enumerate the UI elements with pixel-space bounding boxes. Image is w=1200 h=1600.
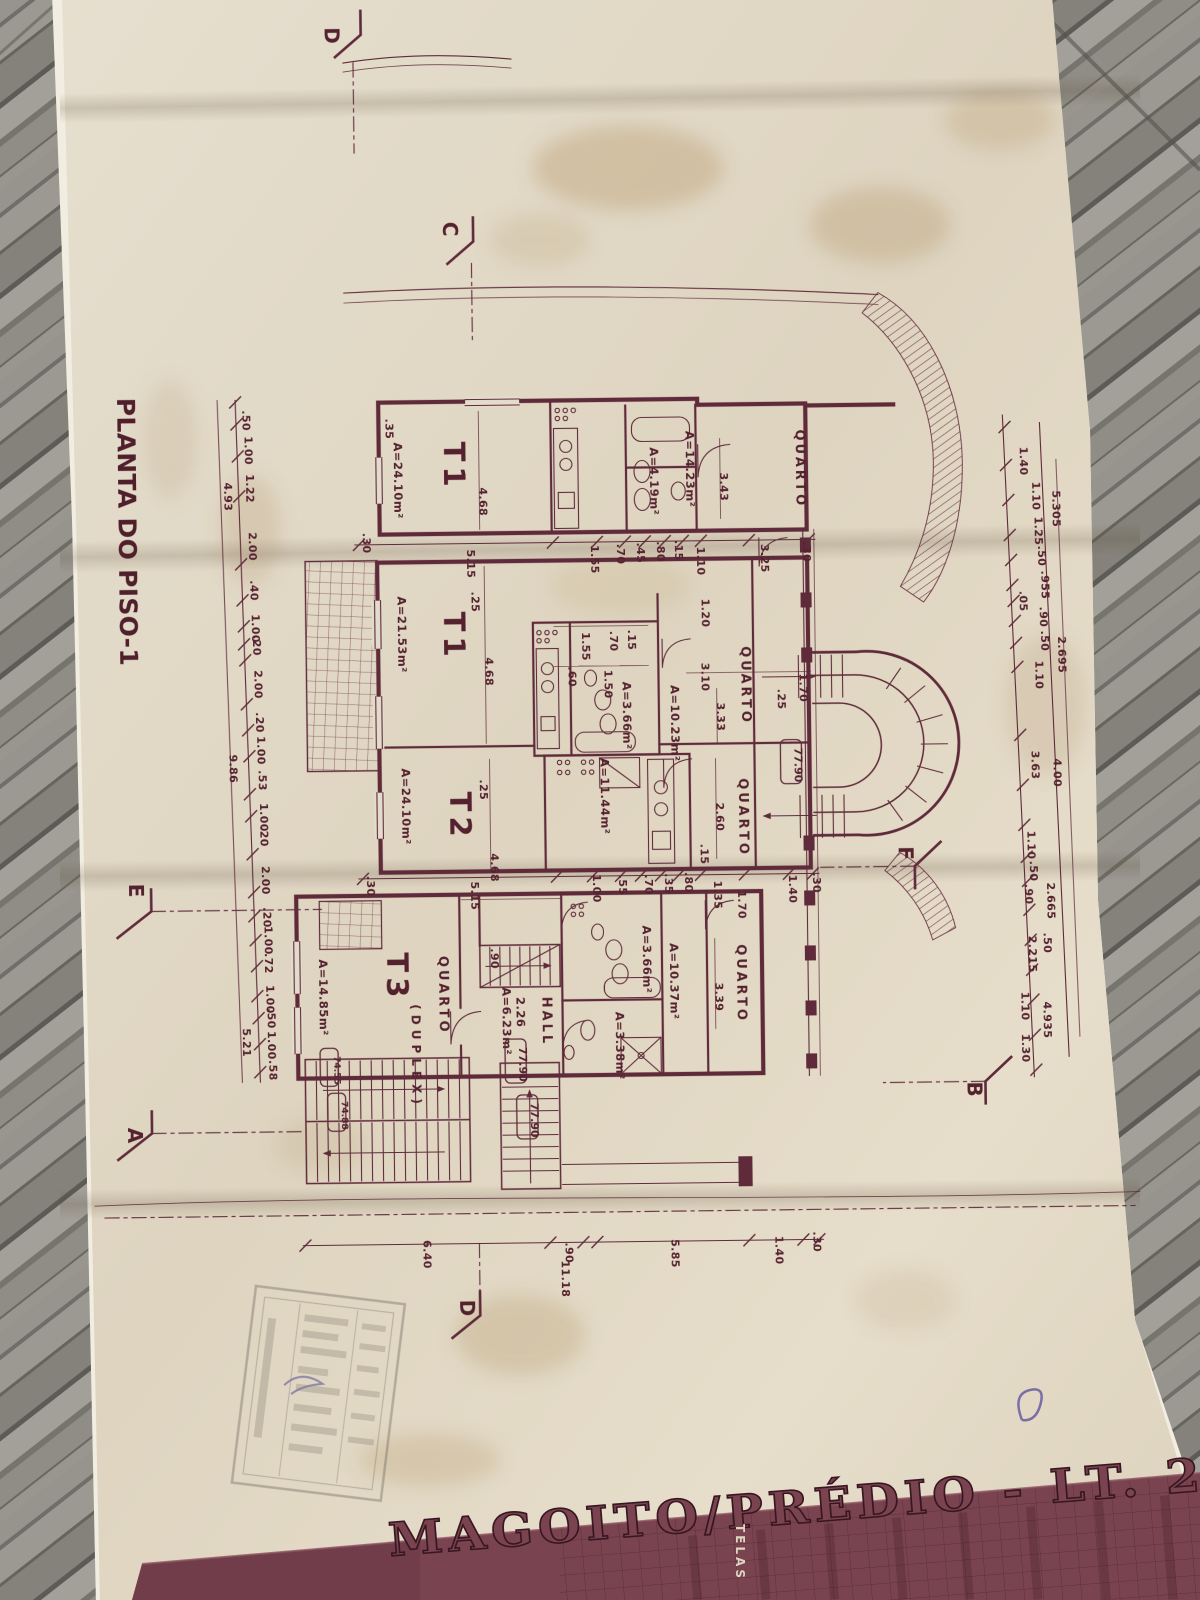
dimension-label: 1.70 [735,890,748,919]
dimension-label: 5.15 [464,549,477,578]
dimension-label: 6.40 [420,1240,433,1269]
dimension-label: .30 [360,533,373,554]
section-letter: D [455,1300,479,1317]
dimension-label: .55 [616,875,629,896]
dimension-label: 1.00 [262,926,275,955]
area-label: A=6.23m² [499,987,514,1055]
dimension-label: .50 [1027,861,1040,882]
dimension-label: 1.00 [254,736,267,765]
dimension-label: 2.00 [259,866,272,895]
dimension-label: .45 [634,542,647,563]
plan-title: PLANTA DO PISO-1 [111,398,143,670]
area-label: A=3.66m² [620,682,635,750]
dimension-label: 5.305 [1049,490,1062,527]
dimension-label: 1.20 [699,599,712,628]
unit-label: T1 [437,612,472,662]
dimension-label: 11.18 [559,1260,572,1297]
dimension-label: .30 [810,1231,823,1252]
dimension-label: 1.10 [1018,992,1031,1021]
dimension-label: .60 [565,666,578,687]
section-letter: C [438,222,462,237]
dimension-label: 3.39 [712,982,725,1011]
section-letter: B [962,1081,986,1097]
dimension-label: .50 [1038,630,1051,651]
room-label: QUARTO [791,429,807,508]
dimension-label: 2.695 [1055,636,1068,673]
unit-label: (DUPLEX) [408,1004,423,1109]
dimension-label: 3.43 [717,472,730,501]
dimension-label: 4.93 [221,482,234,511]
unit-label: T2 [443,792,478,842]
dimension-label: .35 [662,873,675,894]
dimension-label: 9.86 [226,754,239,783]
dimension-label: 1.10 [1029,482,1042,511]
dimension-label: 1.10 [1032,661,1045,690]
dimension-label: .58 [266,1060,279,1081]
dimension-label: .90 [488,948,501,969]
section-letter: E [124,884,148,898]
dimension-label: .40 [247,580,260,601]
dimension-label: 5.15 [468,881,481,910]
dimension-label: 5.85 [668,1239,681,1268]
dimension-label: .50 [1041,932,1054,953]
dimension-label: 2.00 [251,670,264,699]
area-label: A=10.23m² [668,685,683,762]
dimension-label: 3.10 [698,663,711,692]
paper-sheet [52,0,1200,1600]
dimension-label: .20 [257,826,270,847]
level-value: 74.55 [331,1056,341,1085]
dimension-label: .955 [1038,570,1051,599]
dimension-label: 1.40 [1017,447,1030,476]
dimension-label: .70 [642,874,655,895]
area-label: A=3.66m² [640,925,655,993]
area-label: A=14.85m² [316,959,331,1036]
dimension-label: .20 [250,635,263,656]
dimension-label: 2.665 [1044,882,1057,919]
unit-label: T3 [380,952,415,1002]
section-letter: D [320,27,344,44]
section-letter: A [123,1128,147,1144]
dimension-label: 1.55 [588,545,601,574]
area-label: A=4.19m² [647,447,662,515]
room-label: HALL [538,997,554,1047]
dimension-label: .15 [698,844,711,865]
area-label: A=11.44m² [597,758,612,835]
area-label: A=10.37m² [667,943,682,1020]
area-label: A=24.10m² [399,768,414,845]
dimension-label: .50 [265,1008,278,1029]
dimension-label: 1.10 [1024,831,1037,860]
dimension-label: .30 [800,541,813,562]
dimension-label: 4.935 [1040,1001,1053,1038]
room-label: QUARTO [735,778,751,857]
photo-canvas: .305.151.55.70.45.80.151.103.25.303.43.3… [0,0,1200,1600]
dimension-label: 5.21 [240,1028,253,1057]
dimension-label: 4.68 [488,853,501,882]
dimension-label: 2.00 [246,532,259,561]
dimension-label: 1.55 [579,632,592,661]
dimension-label: 1.22 [243,474,256,503]
section-letter: F [894,846,918,860]
dimension-label: .50 [239,410,252,431]
dimension-label: 2.60 [713,802,726,831]
dimension-label: .05 [1016,591,1029,612]
dimension-label: 1.40 [786,875,799,904]
level-value: 74.88 [339,1101,349,1130]
dimension-label: 4.68 [482,657,495,686]
dimension-label: .20 [260,907,273,928]
titleblock-telas-label: TELAS [733,1524,747,1581]
dimension-label: .50 [1035,546,1048,567]
room-label: QUARTO [737,646,753,725]
dimension-label: 1.40 [772,1236,785,1265]
area-label: 2.26 [513,997,527,1028]
dimension-label: .90 [1022,884,1035,905]
dimension-label: .30 [364,876,377,897]
level-value: 77.90 [791,747,804,782]
dimension-label: .70 [607,631,620,652]
dimension-label: 1.00 [265,1031,278,1060]
dimension-label: .25 [775,689,788,710]
dimension-label: 1.25 [1032,517,1045,546]
dimension-label: .90 [1037,606,1050,627]
dimension-label: 1.70 [796,673,809,702]
area-label: A=3.38m² [613,1012,628,1080]
dimension-label: .80 [654,541,667,562]
dimension-label: .15 [625,630,638,651]
room-label: QUARTO [733,944,749,1023]
area-label: A=21.53m² [394,596,409,673]
dimension-label: 3.33 [714,702,727,731]
dimension-label: .25 [468,591,481,612]
dimension-label: 1.00 [242,436,255,465]
level-value: 77.90 [516,1047,529,1082]
room-label: QUARTO [435,956,451,1035]
dimension-label: .15 [672,540,685,561]
unit-label: T1 [437,442,472,492]
level-value: 77.90 [528,1103,541,1138]
dimension-label: 4.68 [476,487,489,516]
dimension-label: .35 [382,418,395,439]
area-label: A=14.23m² [682,431,697,508]
dimension-label: 1.10 [694,547,707,576]
paper [62,0,1200,1600]
dimension-label: 4.00 [1051,758,1064,787]
dimension-label: .25 [477,779,490,800]
dimension-label: .70 [614,544,627,565]
dimension-label: .20 [253,712,266,733]
photo-of-floor-plan: { "scene": { "ink_color": "#5f2b3a", "pa… [0,0,1200,1600]
dimension-label: .30 [810,872,823,893]
dimension-label: 1.00 [590,874,603,903]
dimension-label: 1.30 [1019,1034,1032,1063]
dimension-label: 1.35 [711,880,724,909]
dimension-label: 2.215 [1026,936,1039,973]
dimension-label: .80 [682,872,695,893]
dimension-label: 1.50 [601,670,614,699]
dimension-label: 3.63 [1028,751,1041,780]
area-label: A=24.10m² [391,442,406,519]
dimension-label: 3.25 [758,544,771,573]
dimension-label: .72 [262,953,275,974]
dimension-label: .53 [256,770,269,791]
